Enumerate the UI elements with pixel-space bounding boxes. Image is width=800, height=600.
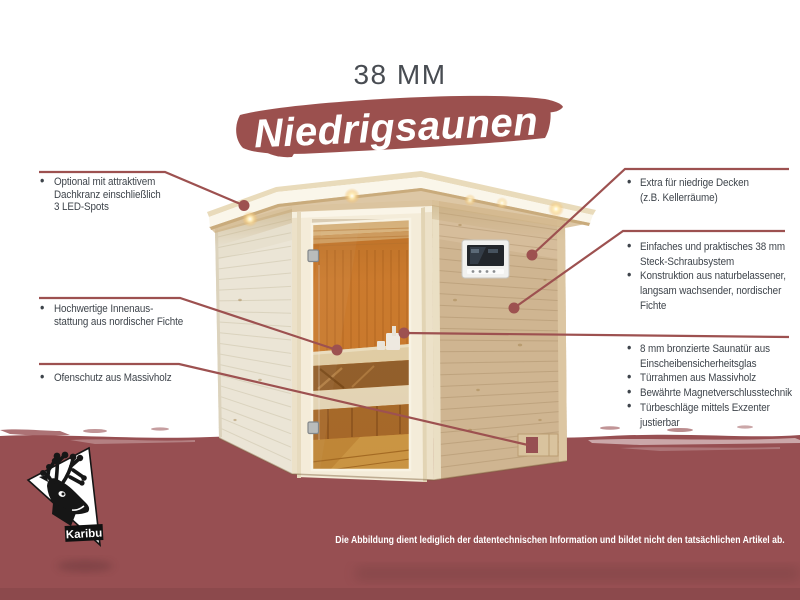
svg-text:Karibu: Karibu <box>66 528 103 542</box>
